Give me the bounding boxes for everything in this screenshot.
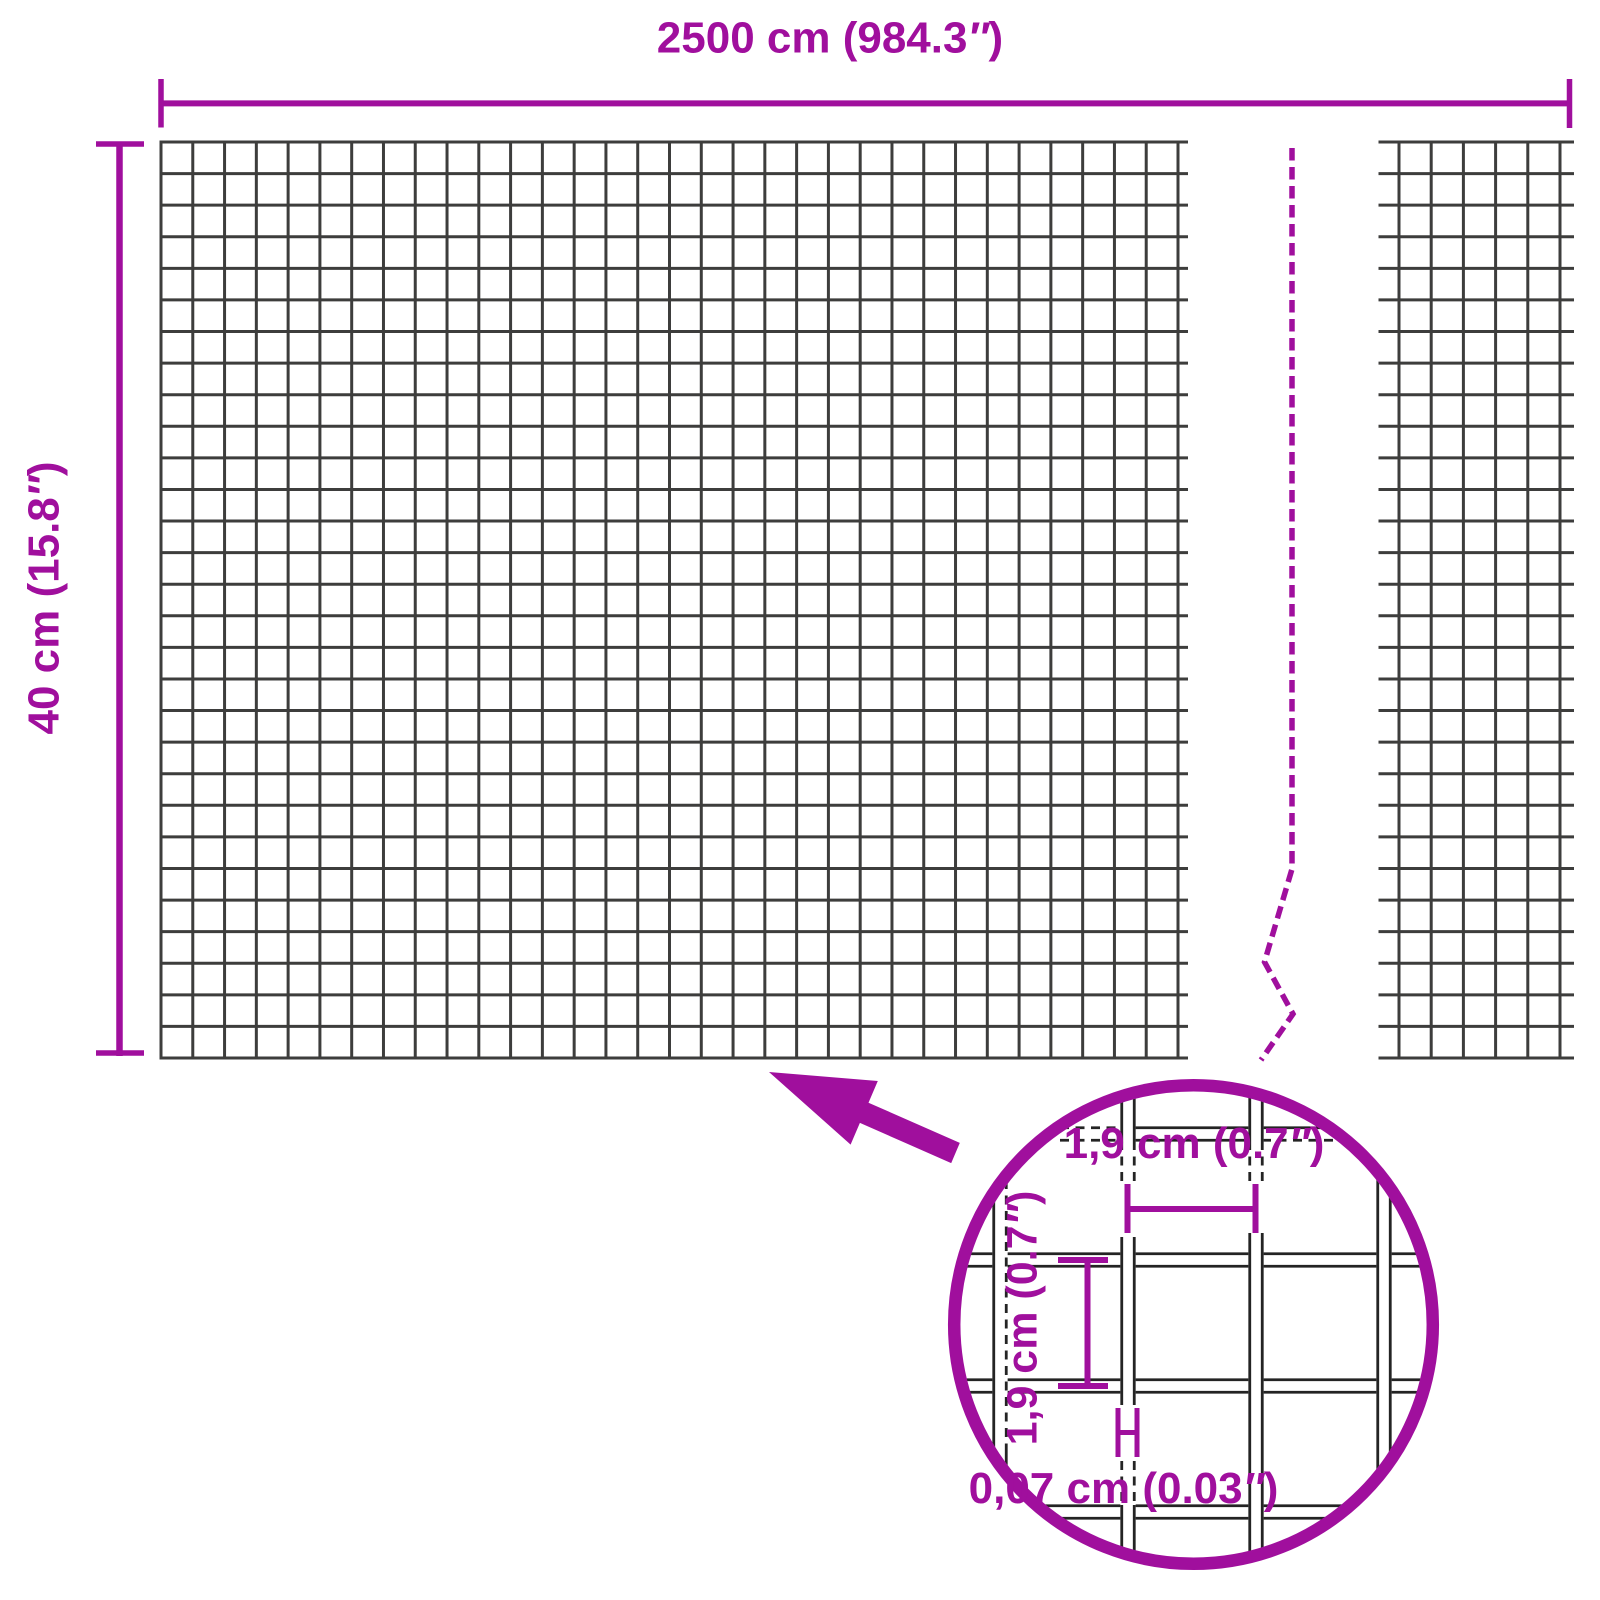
svg-text:1,9 cm (0.7″): 1,9 cm (0.7″) xyxy=(1064,1119,1325,1168)
svg-text:1,9 cm (0.7″): 1,9 cm (0.7″) xyxy=(999,1191,1047,1446)
svg-text:40 cm (15.8″): 40 cm (15.8″) xyxy=(20,461,69,734)
svg-text:0,07 cm (0.03″): 0,07 cm (0.03″) xyxy=(969,1464,1279,1513)
svg-text:2500 cm (984.3″): 2500 cm (984.3″) xyxy=(657,14,1003,63)
